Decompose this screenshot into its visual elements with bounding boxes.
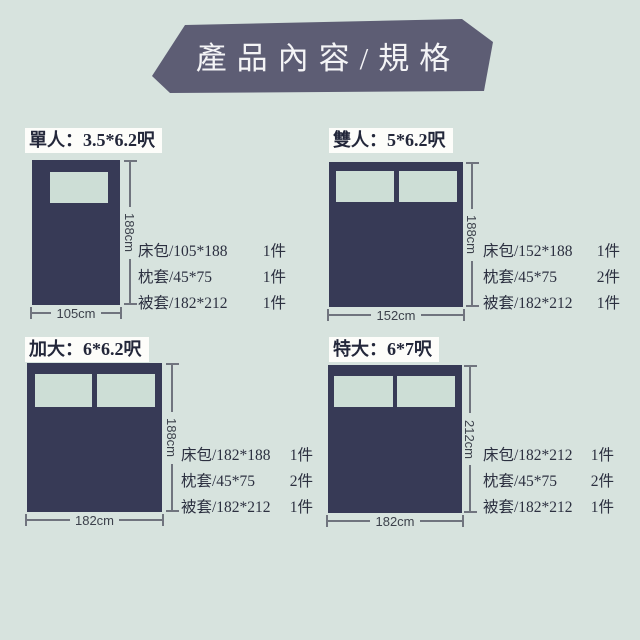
spec-qty: 1件 xyxy=(290,443,313,465)
dimension-line xyxy=(471,261,473,306)
dimension-line xyxy=(329,314,371,316)
product-title-single: 單人：3.5*6.2呎 xyxy=(25,128,162,153)
spec-item: 被套/182*212 xyxy=(138,291,228,313)
pillow xyxy=(397,376,455,407)
spec-qty: 2件 xyxy=(290,469,313,491)
pillow xyxy=(334,376,393,407)
spec-qty: 2件 xyxy=(591,469,614,491)
spec-item: 被套/182*212 xyxy=(181,495,271,517)
height-dimension-king: 212cm xyxy=(463,365,477,513)
spec-item: 枕套/45*75 xyxy=(483,265,557,287)
width-label: 182cm xyxy=(70,513,119,528)
dimension-line xyxy=(27,519,70,521)
pillow xyxy=(35,374,92,407)
bed-diagram-queen xyxy=(27,363,162,512)
width-label: 152cm xyxy=(371,308,420,323)
dimension-line xyxy=(469,367,471,413)
dimension-tick xyxy=(463,309,465,321)
spec-item: 枕套/45*75 xyxy=(138,265,212,287)
spec-qty: 2件 xyxy=(597,265,620,287)
height-dimension-queen: 188cm xyxy=(165,363,179,512)
dimension-line xyxy=(129,162,131,207)
product-title-king: 特大：6*7呎 xyxy=(329,337,439,362)
spec-row: 被套/182*212 1件 xyxy=(181,493,313,519)
dimension-line xyxy=(469,465,471,511)
bed-diagram-single xyxy=(32,160,120,305)
dimension-tick xyxy=(464,511,477,513)
dimension-line xyxy=(119,519,162,521)
dimension-line xyxy=(32,312,51,314)
spec-item: 床包/105*188 xyxy=(138,239,228,261)
spec-item: 床包/152*188 xyxy=(483,239,573,261)
product-title-queen: 加大：6*6.2呎 xyxy=(25,337,149,362)
spec-row: 被套/182*212 1件 xyxy=(483,289,620,315)
spec-row: 枕套/45*75 1件 xyxy=(138,263,286,289)
dimension-tick xyxy=(166,510,179,512)
spec-qty: 1件 xyxy=(263,239,286,261)
spec-list-king: 床包/182*212 1件 枕套/45*75 2件 被套/182*212 1件 xyxy=(483,441,614,519)
spec-qty: 1件 xyxy=(263,291,286,313)
spec-item: 床包/182*188 xyxy=(181,443,271,465)
pillow xyxy=(50,172,108,203)
spec-row: 床包/182*188 1件 xyxy=(181,441,313,467)
height-label: 188cm xyxy=(123,213,138,252)
dimension-line xyxy=(171,365,173,412)
dimension-line xyxy=(421,314,463,316)
spec-item: 被套/182*212 xyxy=(483,291,573,313)
width-dimension-queen: 182cm xyxy=(25,513,164,527)
spec-item: 枕套/45*75 xyxy=(181,469,255,491)
width-dimension-king: 182cm xyxy=(326,514,464,528)
dimension-tick xyxy=(124,303,137,305)
spec-row: 被套/182*212 1件 xyxy=(138,289,286,315)
width-dimension-double: 152cm xyxy=(327,308,465,322)
spec-qty: 1件 xyxy=(597,239,620,261)
spec-row: 床包/152*188 1件 xyxy=(483,237,620,263)
spec-item: 床包/182*212 xyxy=(483,443,573,465)
dimension-line xyxy=(420,520,462,522)
spec-qty: 1件 xyxy=(263,265,286,287)
dimension-line xyxy=(171,464,173,511)
dimension-tick xyxy=(120,307,122,319)
spec-qty: 1件 xyxy=(290,495,313,517)
page-title: 產品內容/規格 xyxy=(186,33,461,78)
dimension-line xyxy=(101,312,120,314)
dimension-tick xyxy=(462,515,464,527)
bed-diagram-king xyxy=(328,365,462,513)
height-label: 188cm xyxy=(465,215,480,254)
dimension-tick xyxy=(162,514,164,526)
dimension-line xyxy=(471,164,473,209)
width-dimension-single: 105cm xyxy=(30,306,122,320)
dimension-line xyxy=(129,259,131,304)
spec-item: 枕套/45*75 xyxy=(483,469,557,491)
height-label: 212cm xyxy=(463,419,478,458)
height-dimension-single: 188cm xyxy=(123,160,137,305)
spec-qty: 1件 xyxy=(591,443,614,465)
spec-list-queen: 床包/182*188 1件 枕套/45*75 2件 被套/182*212 1件 xyxy=(181,441,313,519)
spec-row: 枕套/45*75 2件 xyxy=(483,263,620,289)
spec-qty: 1件 xyxy=(591,495,614,517)
header-banner: 產品內容/規格 xyxy=(150,16,496,94)
pillow xyxy=(336,171,394,202)
spec-list-single: 床包/105*188 1件 枕套/45*75 1件 被套/182*212 1件 xyxy=(138,237,286,315)
spec-row: 被套/182*212 1件 xyxy=(483,493,614,519)
pillow xyxy=(97,374,155,407)
width-label: 105cm xyxy=(51,306,100,321)
spec-row: 床包/182*212 1件 xyxy=(483,441,614,467)
product-title-double: 雙人：5*6.2呎 xyxy=(329,128,453,153)
spec-row: 床包/105*188 1件 xyxy=(138,237,286,263)
pillow xyxy=(399,171,457,202)
spec-qty: 1件 xyxy=(597,291,620,313)
product-spec-infographic: { "header": { "title": "產品內容/規格" }, "col… xyxy=(0,0,640,640)
height-label: 188cm xyxy=(165,418,180,457)
spec-list-double: 床包/152*188 1件 枕套/45*75 2件 被套/182*212 1件 xyxy=(483,237,620,315)
bed-diagram-double xyxy=(329,162,463,307)
height-dimension-double: 188cm xyxy=(465,162,479,307)
dimension-tick xyxy=(466,305,479,307)
dimension-line xyxy=(328,520,370,522)
spec-row: 枕套/45*75 2件 xyxy=(181,467,313,493)
spec-row: 枕套/45*75 2件 xyxy=(483,467,614,493)
spec-item: 被套/182*212 xyxy=(483,495,573,517)
width-label: 182cm xyxy=(370,514,419,529)
